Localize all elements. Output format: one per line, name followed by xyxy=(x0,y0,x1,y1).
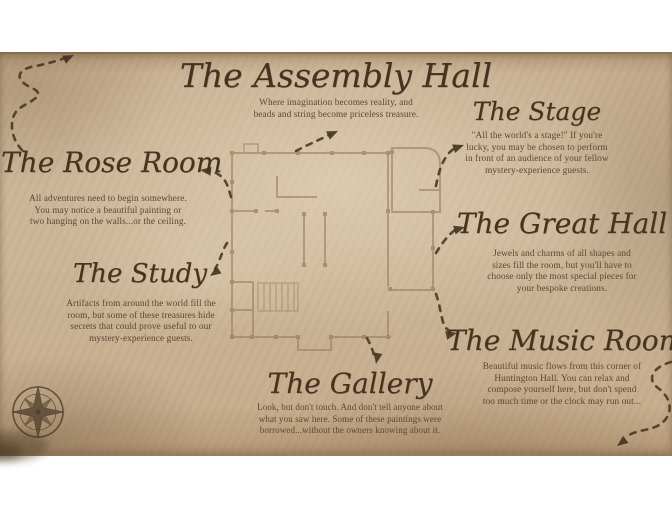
text-line: your bespoke creations. xyxy=(462,284,662,296)
text-line: mystery-experience guests. xyxy=(442,166,632,178)
text-line: mystery-experience guests. xyxy=(42,334,240,346)
gallery-title: The Gallery xyxy=(250,367,450,400)
stage-description: "All the world's a stage!" If you're luc… xyxy=(442,131,632,177)
great-hall-title: The Great Hall xyxy=(452,207,672,240)
text-line: compose yourself here, but don't spend xyxy=(458,385,666,397)
text-line: Beautiful music flows from this corner o… xyxy=(458,362,666,374)
stage-title: The Stage xyxy=(437,97,637,126)
study-description: Artifacts from around the world fill the… xyxy=(42,299,240,345)
text-line: what you saw here. Some of these paintin… xyxy=(236,414,464,426)
study-title: The Study xyxy=(40,259,240,289)
text-line: Artifacts from around the world fill the xyxy=(42,299,240,311)
gallery-description: Look, but don't touch. And don't tell an… xyxy=(236,402,464,437)
text-line: Look, but don't touch. And don't tell an… xyxy=(236,402,464,414)
text-line: Jewels and charms of all shapes and xyxy=(462,249,662,261)
text-line: You may notice a beautiful painting or xyxy=(8,206,208,218)
text-line: borrowed...without the owners knowing ab… xyxy=(236,425,464,437)
text-line: All adventures need to begin somewhere. xyxy=(8,194,208,206)
text-line: room, but some of these treasures hide xyxy=(42,311,240,323)
rose-room-description: All adventures need to begin somewhere. … xyxy=(8,194,208,229)
text-line: in front of an audience of your fellow xyxy=(442,154,632,166)
text-line: too much time or the clock may run out..… xyxy=(458,397,666,409)
map-flyer: The Assembly Hall Where imagination beco… xyxy=(0,0,672,510)
text-line: two hanging on the walls...or the ceilin… xyxy=(8,217,208,229)
music-room-title: The Music Room xyxy=(447,324,672,357)
text-line: Huntington Hall. You can relax and xyxy=(458,374,666,386)
text-line: "All the world's a stage!" If you're xyxy=(442,131,632,143)
music-room-description: Beautiful music flows from this corner o… xyxy=(458,362,666,408)
text-line: lucky, you may be chosen to perform xyxy=(442,143,632,155)
text-line: sizes fill the room, but you'll have to xyxy=(462,261,662,273)
rose-room-title: The Rose Room xyxy=(1,146,213,179)
assembly-hall-title: The Assembly Hall xyxy=(176,56,496,95)
text-line: secrets that could prove useful to our xyxy=(42,322,240,334)
text-line: choose only the most special pieces for xyxy=(462,272,662,284)
great-hall-description: Jewels and charms of all shapes and size… xyxy=(462,249,662,295)
